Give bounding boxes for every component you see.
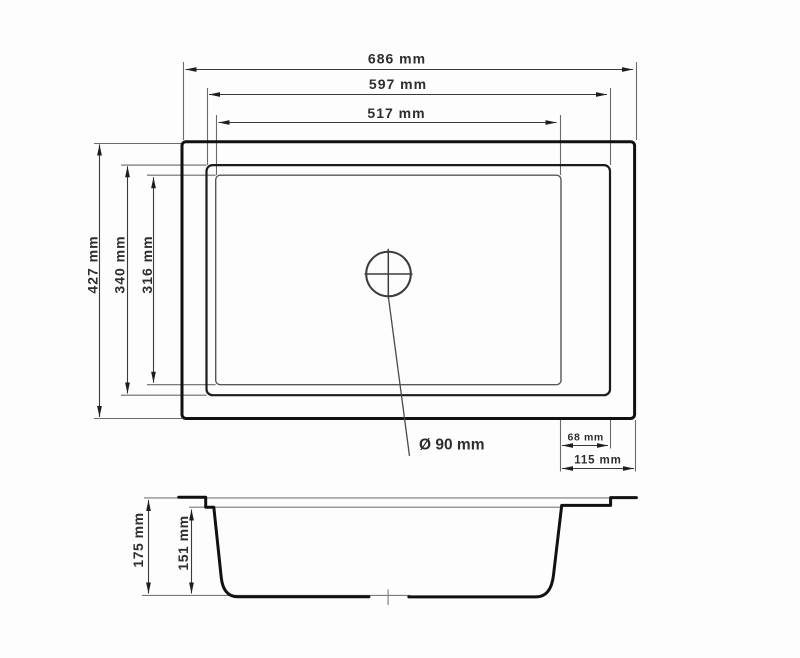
svg-text:517 mm: 517 mm	[367, 105, 425, 121]
svg-text:427 mm: 427 mm	[85, 235, 101, 293]
svg-text:686 mm: 686 mm	[368, 51, 426, 67]
svg-text:597 mm: 597 mm	[369, 76, 427, 92]
svg-text:151 mm: 151 mm	[175, 515, 191, 570]
svg-text:115 mm: 115 mm	[574, 455, 622, 467]
svg-text:68 mm: 68 mm	[568, 432, 604, 444]
svg-text:316 mm: 316 mm	[139, 235, 155, 293]
svg-text:Ø 90 mm: Ø 90 mm	[419, 437, 484, 454]
svg-text:175 mm: 175 mm	[130, 512, 146, 567]
svg-text:340 mm: 340 mm	[111, 235, 127, 293]
